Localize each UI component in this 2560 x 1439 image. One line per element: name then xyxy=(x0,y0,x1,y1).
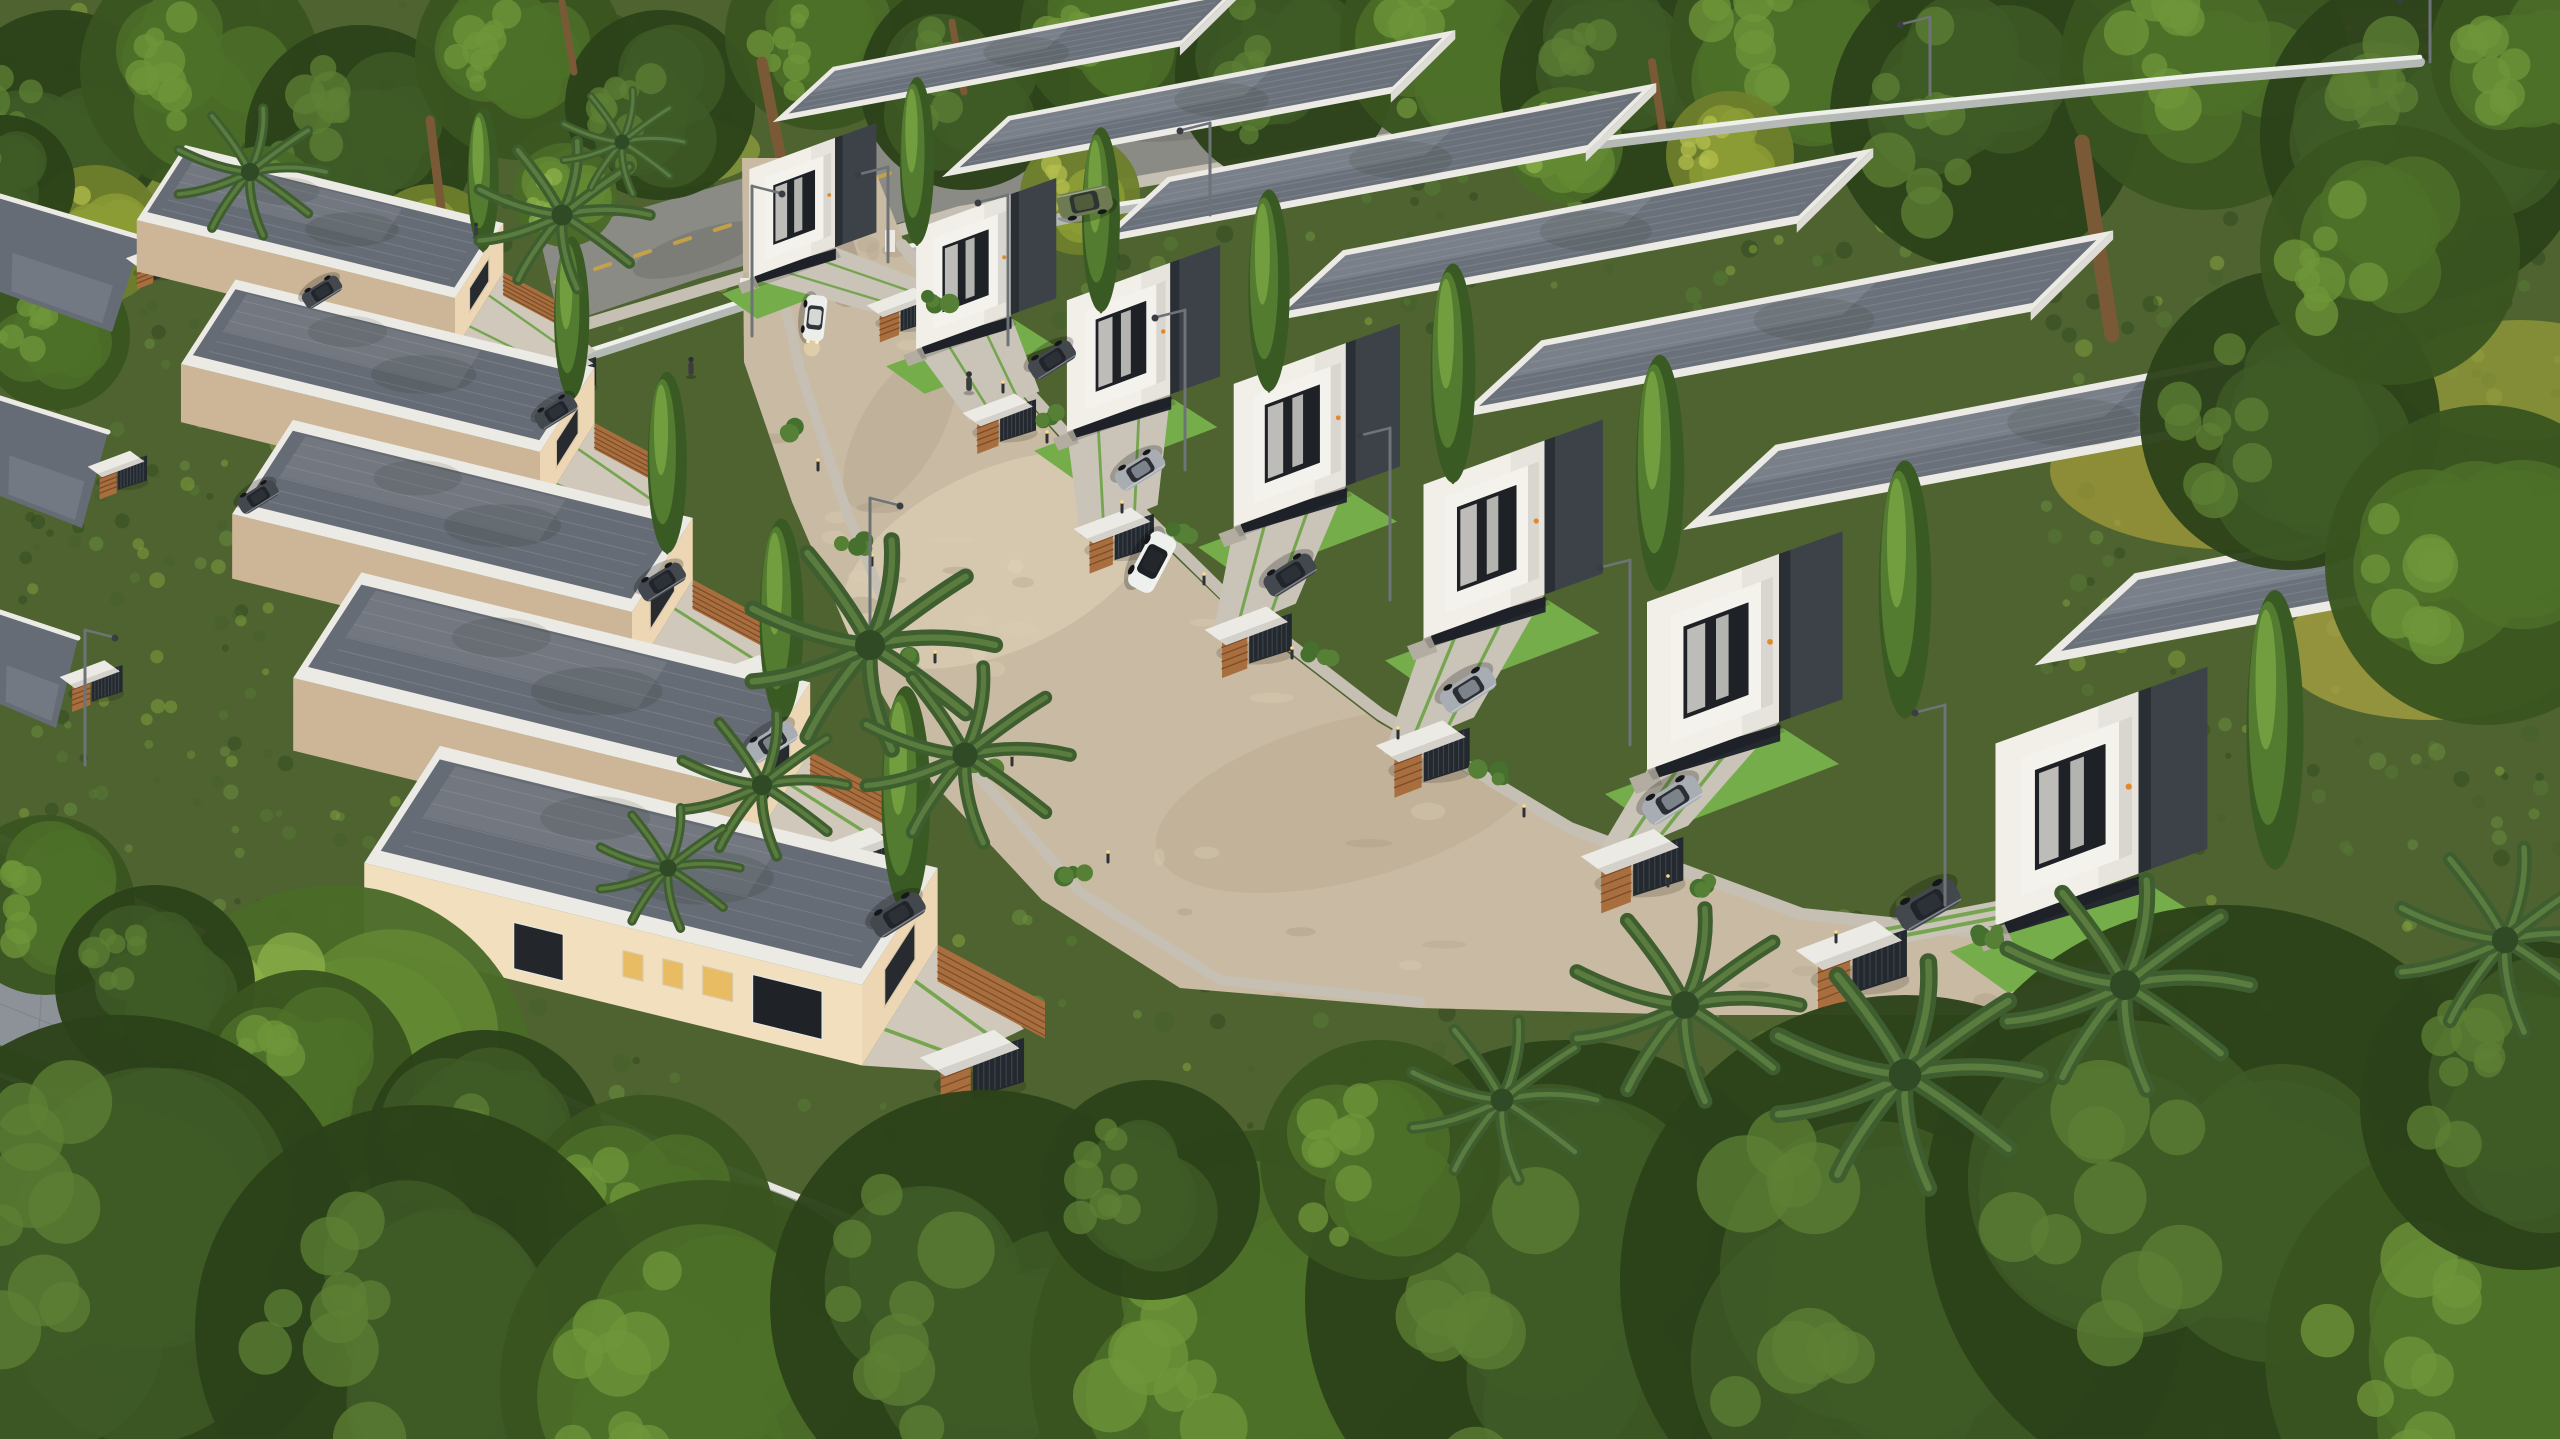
curtain xyxy=(1098,317,1112,388)
curtain xyxy=(794,177,802,233)
wall-lamp xyxy=(827,193,831,197)
hedge xyxy=(1492,772,1505,785)
lamp-head xyxy=(1897,22,1904,29)
lamp-head xyxy=(1597,565,1604,572)
lit-window xyxy=(663,959,683,990)
hedge xyxy=(1694,881,1710,897)
estate-aerial-render-canvas xyxy=(0,0,2560,1439)
bollard-light xyxy=(1001,380,1005,384)
curtain xyxy=(1716,614,1729,700)
wall-lamp xyxy=(2126,784,2132,790)
bollard-light xyxy=(816,458,820,462)
bollard-light xyxy=(933,650,937,654)
hedge xyxy=(1035,413,1049,427)
wall-lamp xyxy=(1336,415,1341,420)
lamp-head xyxy=(112,635,119,642)
hedge xyxy=(834,536,849,551)
hedge xyxy=(1323,650,1340,667)
hedge xyxy=(780,424,799,443)
hedge xyxy=(1058,867,1074,883)
bollard-light xyxy=(1106,850,1110,854)
curtain xyxy=(2070,757,2084,850)
lamp-head xyxy=(1912,710,1919,717)
bollard-light xyxy=(1045,430,1049,434)
curtain xyxy=(1121,310,1131,377)
estate-aerial-render xyxy=(0,0,2560,1439)
bollard-light xyxy=(1202,572,1206,576)
lamp-head xyxy=(975,200,982,207)
wall-lamp xyxy=(1002,255,1006,259)
hedge xyxy=(1300,646,1316,662)
hedge xyxy=(1182,528,1198,544)
bollard-light xyxy=(1522,804,1526,808)
lamp-head xyxy=(1152,315,1159,322)
bollard-light xyxy=(1120,500,1124,504)
hedge xyxy=(940,294,960,314)
bollard-light xyxy=(1290,646,1294,650)
wall-lamp xyxy=(1161,329,1166,334)
curtain xyxy=(1292,394,1303,467)
lamp-head xyxy=(897,503,904,510)
wall-lamp xyxy=(1767,639,1773,645)
hedge xyxy=(1166,522,1181,537)
hedge xyxy=(1468,759,1488,779)
bollard-light xyxy=(1396,726,1400,730)
lamp-head xyxy=(1357,433,1364,440)
lamp-head xyxy=(1177,128,1184,135)
curtain xyxy=(1487,496,1499,575)
bollard-light xyxy=(1666,874,1670,878)
bollard-light xyxy=(1834,930,1838,934)
curtain xyxy=(1687,623,1705,714)
lamp-head xyxy=(779,191,786,198)
wall-lamp xyxy=(1534,518,1539,523)
curtain xyxy=(1460,504,1477,587)
hedge xyxy=(1076,864,1093,881)
hedge xyxy=(921,290,934,303)
lit-window xyxy=(623,951,643,982)
curtain xyxy=(1268,402,1283,479)
curtain xyxy=(2039,766,2059,864)
curtain xyxy=(966,237,975,299)
hedge xyxy=(848,537,867,556)
lamp-head xyxy=(855,172,862,179)
